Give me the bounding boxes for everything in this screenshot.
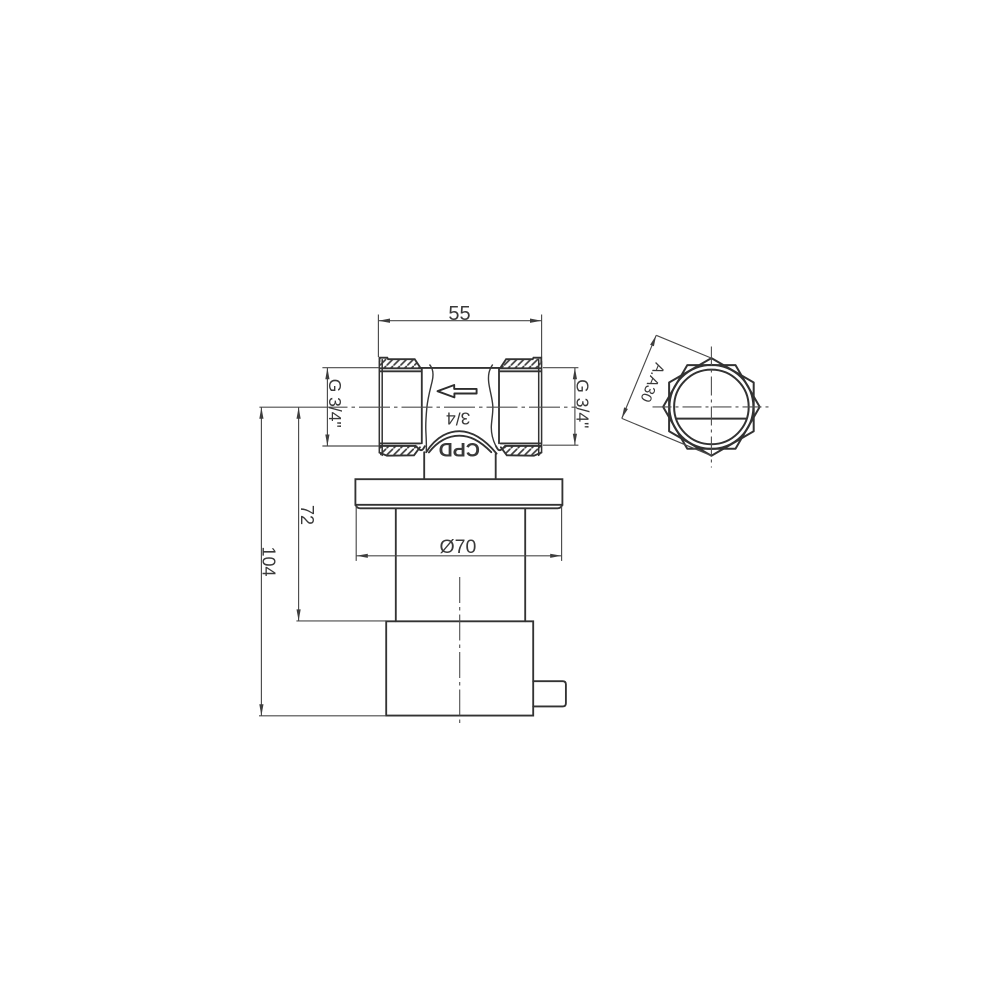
- svg-text:A.A30: A.A30: [636, 360, 667, 404]
- svg-text:G 3/4": G 3/4": [325, 379, 345, 428]
- svg-text:72: 72: [297, 505, 317, 525]
- svg-text:55: 55: [448, 303, 470, 325]
- svg-text:G 3/4": G 3/4": [572, 379, 592, 428]
- svg-text:3/4: 3/4: [446, 409, 471, 429]
- svg-text:Ø70: Ø70: [439, 536, 476, 558]
- svg-text:CPD: CPD: [439, 438, 480, 460]
- svg-text:104: 104: [258, 546, 278, 576]
